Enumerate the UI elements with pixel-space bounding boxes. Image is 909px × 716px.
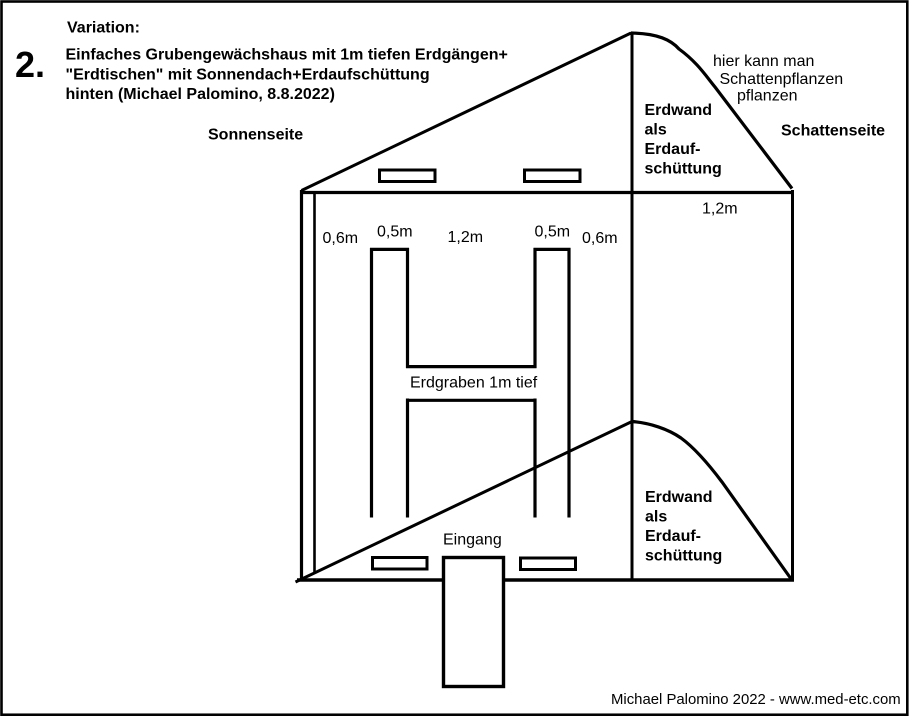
- svg-text:Einfaches Grubengewächshaus mi: Einfaches Grubengewächshaus mit 1m tiefe…: [66, 47, 508, 64]
- svg-text:Erdgraben 1m tief: Erdgraben 1m tief: [410, 375, 538, 392]
- svg-text:als: als: [645, 509, 667, 526]
- svg-text:Variation:: Variation:: [67, 20, 140, 37]
- svg-text:0,6m: 0,6m: [323, 230, 359, 247]
- svg-text:Michael Palomino 2022 - www.me: Michael Palomino 2022 - www.med-etc.com: [611, 692, 901, 708]
- svg-text:0,6m: 0,6m: [582, 230, 618, 247]
- svg-text:"Erdtischen" mit Sonnendach+Er: "Erdtischen" mit Sonnendach+Erdaufschütt…: [66, 67, 430, 84]
- svg-text:Eingang: Eingang: [443, 532, 502, 549]
- svg-text:2.: 2.: [15, 44, 45, 85]
- svg-text:1,2m: 1,2m: [702, 201, 738, 218]
- svg-text:Schattenseite: Schattenseite: [781, 123, 885, 140]
- svg-text:Schattenpflanzen: Schattenpflanzen: [720, 71, 844, 88]
- svg-text:0,5m: 0,5m: [535, 224, 571, 241]
- svg-text:schüttung: schüttung: [645, 161, 722, 178]
- svg-text:Erdauf-: Erdauf-: [645, 141, 701, 158]
- svg-text:schüttung: schüttung: [645, 548, 722, 565]
- svg-text:Erdwand: Erdwand: [645, 102, 713, 119]
- svg-text:Erdauf-: Erdauf-: [645, 528, 701, 545]
- svg-text:1,2m: 1,2m: [448, 229, 484, 246]
- svg-text:Erdwand: Erdwand: [645, 489, 713, 506]
- svg-text:0,5m: 0,5m: [377, 224, 413, 241]
- svg-text:hinten (Michael Palomino, 8.8.: hinten (Michael Palomino, 8.8.2022): [66, 86, 335, 103]
- svg-text:Sonnenseite: Sonnenseite: [208, 127, 303, 144]
- svg-text:als: als: [645, 122, 667, 139]
- svg-text:pflanzen: pflanzen: [737, 88, 798, 105]
- svg-text:hier kann man: hier kann man: [713, 53, 814, 70]
